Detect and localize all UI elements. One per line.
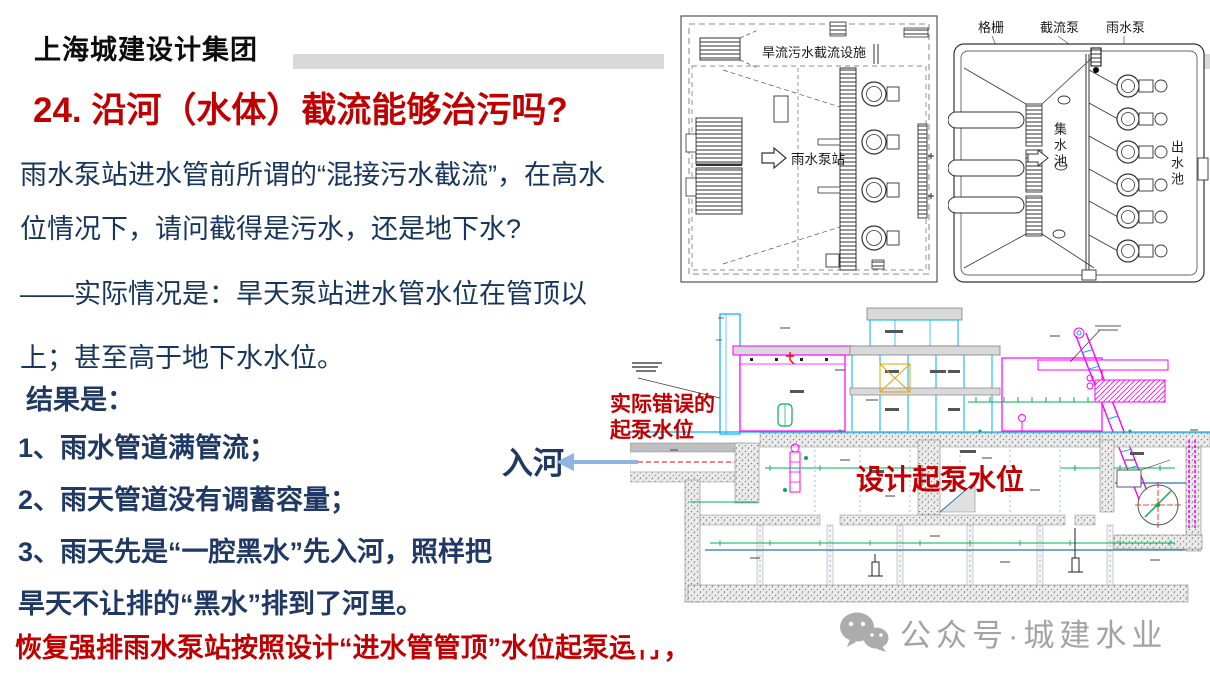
paragraph-2-line-1: ——实际情况是：旱天泵站进水管水位在管顶以 <box>20 262 675 326</box>
paragraph-2: ——实际情况是：旱天泵站进水管水位在管顶以 上；甚至高于地下水水位。 <box>20 262 675 390</box>
slide-title: 24. 沿河（水体）截流能够治污吗? <box>33 82 568 133</box>
results-heading: 结果是： <box>26 378 134 417</box>
plan-screen-lower <box>696 168 742 214</box>
to-river-label: 入河 <box>502 438 564 483</box>
grille-label: 格栅 <box>978 20 1004 35</box>
paragraph-1-line-2: 位情况下，请问截得是污水，还是地下水? <box>20 202 675 256</box>
design-pump-level-label: 设计起泵水位 <box>856 458 1024 498</box>
wechat-icon <box>838 610 890 654</box>
plan-screen-upper <box>696 118 742 164</box>
plan-screen-channel <box>840 68 856 270</box>
sump-label: 集水池 <box>1053 122 1066 170</box>
grille-screen-3 <box>1026 196 1042 236</box>
conclusion-text: 恢复强排雨水泵站按照设计“进水管管顶”水位起泵运行； <box>15 626 690 665</box>
outlet-pool-label: 出水池 <box>1170 140 1183 188</box>
station-label: 雨水泵站 <box>791 152 845 167</box>
watermark: 公众号·城建水业 <box>838 604 1210 660</box>
wrong-pump-level-label: 实际错误的 起泵水位 <box>610 392 715 444</box>
wrong-pump-level-line1: 实际错误的 <box>610 392 715 418</box>
watermark-text: 公众号·城建水业 <box>900 610 1167 655</box>
result-item-3-continued: 旱天不让排的“黑水”排到了河里。 <box>18 582 423 621</box>
hall-roof <box>733 346 855 355</box>
vent-shaft <box>720 314 740 434</box>
slide: 上海城建设计集团 24. 沿河（水体）截流能够治污吗? 雨水泵站进水管前所谓的“… <box>0 0 1210 681</box>
to-river-arrow-icon <box>556 450 642 474</box>
result-item-1: 1、雨水管道满管流； <box>18 426 276 465</box>
outfall-channel <box>630 443 745 482</box>
intercept-pump-symbol <box>1091 48 1101 66</box>
result-item-3: 3、雨天先是“一腔黑水”先入河，照样把 <box>18 530 492 569</box>
intercept-facility-screen <box>700 38 740 60</box>
wrong-pump-level-line2: 起泵水位 <box>610 418 715 444</box>
paragraph-1: 雨水泵站进水管前所谓的“混接污水截流”，在高水 位情况下，请问截得是污水，还是地… <box>20 148 675 256</box>
rain-pump-label: 雨水泵 <box>1106 20 1145 35</box>
intercept-pump-label: 截流泵 <box>1040 20 1079 35</box>
pump-station-plan-diagram: 旱流污水截流设施 雨水泵站 <box>678 8 943 290</box>
header-divider-bar <box>293 54 664 69</box>
result-item-2: 2、雨天管道没有调蓄容量； <box>18 478 357 517</box>
intercept-facility-label: 旱流污水截流设施 <box>762 45 866 60</box>
conveyor-box <box>1095 380 1165 402</box>
paragraph-1-line-1: 雨水泵站进水管前所谓的“混接污水截流”，在高水 <box>20 148 675 202</box>
grille-screen-1 <box>1026 104 1042 146</box>
company-logo: 上海城建设计集团 <box>34 28 258 67</box>
canopy <box>1038 360 1168 370</box>
